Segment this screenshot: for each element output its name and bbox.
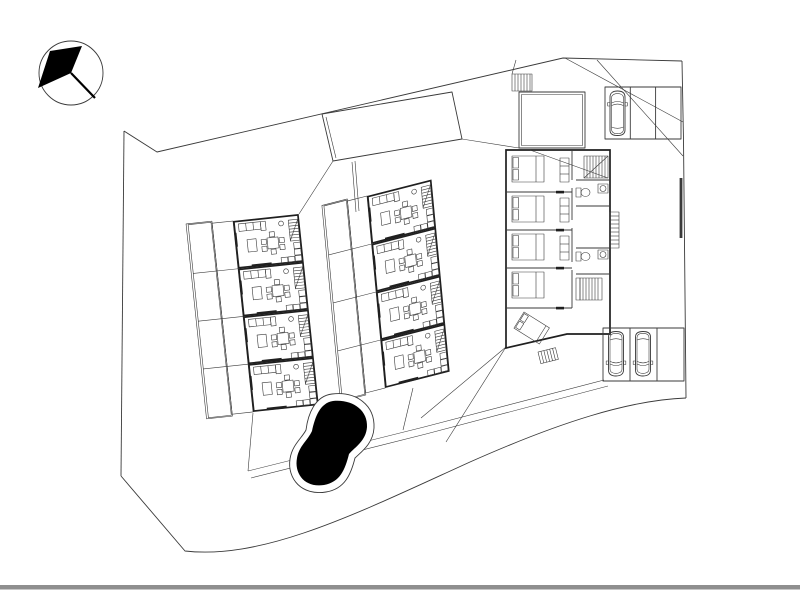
wardrobes <box>560 158 569 260</box>
stairs-exterior <box>610 212 619 248</box>
unit-1 <box>367 181 435 244</box>
north-arrow-icon <box>38 41 103 105</box>
unit-4 <box>381 325 449 388</box>
lawn-parallelogram <box>299 92 519 214</box>
stairs-top <box>584 156 608 178</box>
bathroom-1 <box>576 184 608 197</box>
double-beds <box>512 156 549 344</box>
unit-2 <box>238 263 308 317</box>
parking-north <box>605 87 681 139</box>
row-house-west <box>186 212 318 419</box>
stairs-courtyard <box>512 60 532 91</box>
sheet-bottom-edge <box>0 585 800 590</box>
parking-south <box>603 328 684 381</box>
unit-4 <box>248 358 318 412</box>
stairs-garden <box>538 348 558 364</box>
unit-2 <box>372 229 440 292</box>
villa-courtyard <box>512 60 585 148</box>
car-icon <box>633 332 653 377</box>
garden-strips <box>322 194 385 401</box>
site-boundary <box>121 58 686 552</box>
car-icon <box>606 332 626 377</box>
row-house-center <box>322 178 449 402</box>
bathroom-2 <box>576 250 608 261</box>
unit-1 <box>233 215 303 269</box>
villa-east <box>506 150 619 348</box>
site-plan-canvas <box>0 0 800 600</box>
drawing-sheet <box>0 0 800 600</box>
unit-3 <box>376 277 444 340</box>
garden-strips <box>186 219 253 419</box>
stairs-mid <box>576 278 602 300</box>
swimming-pool <box>290 394 374 493</box>
unit-3 <box>243 310 313 364</box>
car-icon <box>608 91 628 136</box>
